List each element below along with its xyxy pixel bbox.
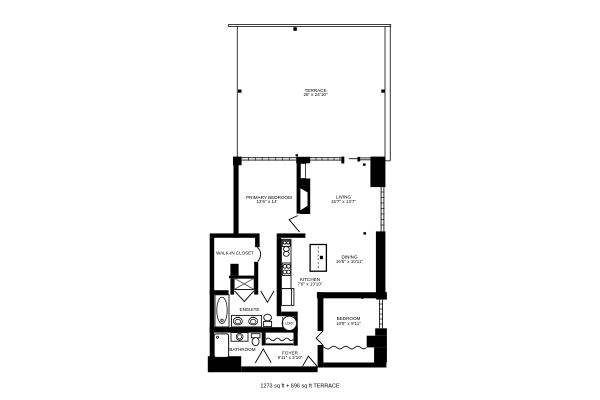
svg-text:LDRY: LDRY <box>285 322 294 326</box>
svg-text:ENSUITE: ENSUITE <box>240 307 260 312</box>
svg-text:9'11" x 3'10": 9'11" x 3'10" <box>278 355 303 360</box>
svg-text:7'6" x 13'10": 7'6" x 13'10" <box>297 282 322 287</box>
svg-text:13'6" x 14': 13'6" x 14' <box>257 199 278 204</box>
svg-text:WALK-IN CLOSET: WALK-IN CLOSET <box>216 251 254 256</box>
svg-text:BATHROOM: BATHROOM <box>229 347 255 352</box>
svg-text:15'7" x 13'7": 15'7" x 13'7" <box>331 199 356 204</box>
svg-text:16'5" x 10'11": 16'5" x 10'11" <box>336 259 364 264</box>
svg-text:28' x 24'10": 28' x 24'10" <box>303 92 328 97</box>
svg-text:10'9" x 9'11": 10'9" x 9'11" <box>336 321 361 326</box>
svg-text:1273 sq ft + 696 sq ft TERRACE: 1273 sq ft + 696 sq ft TERRACE <box>260 383 340 389</box>
